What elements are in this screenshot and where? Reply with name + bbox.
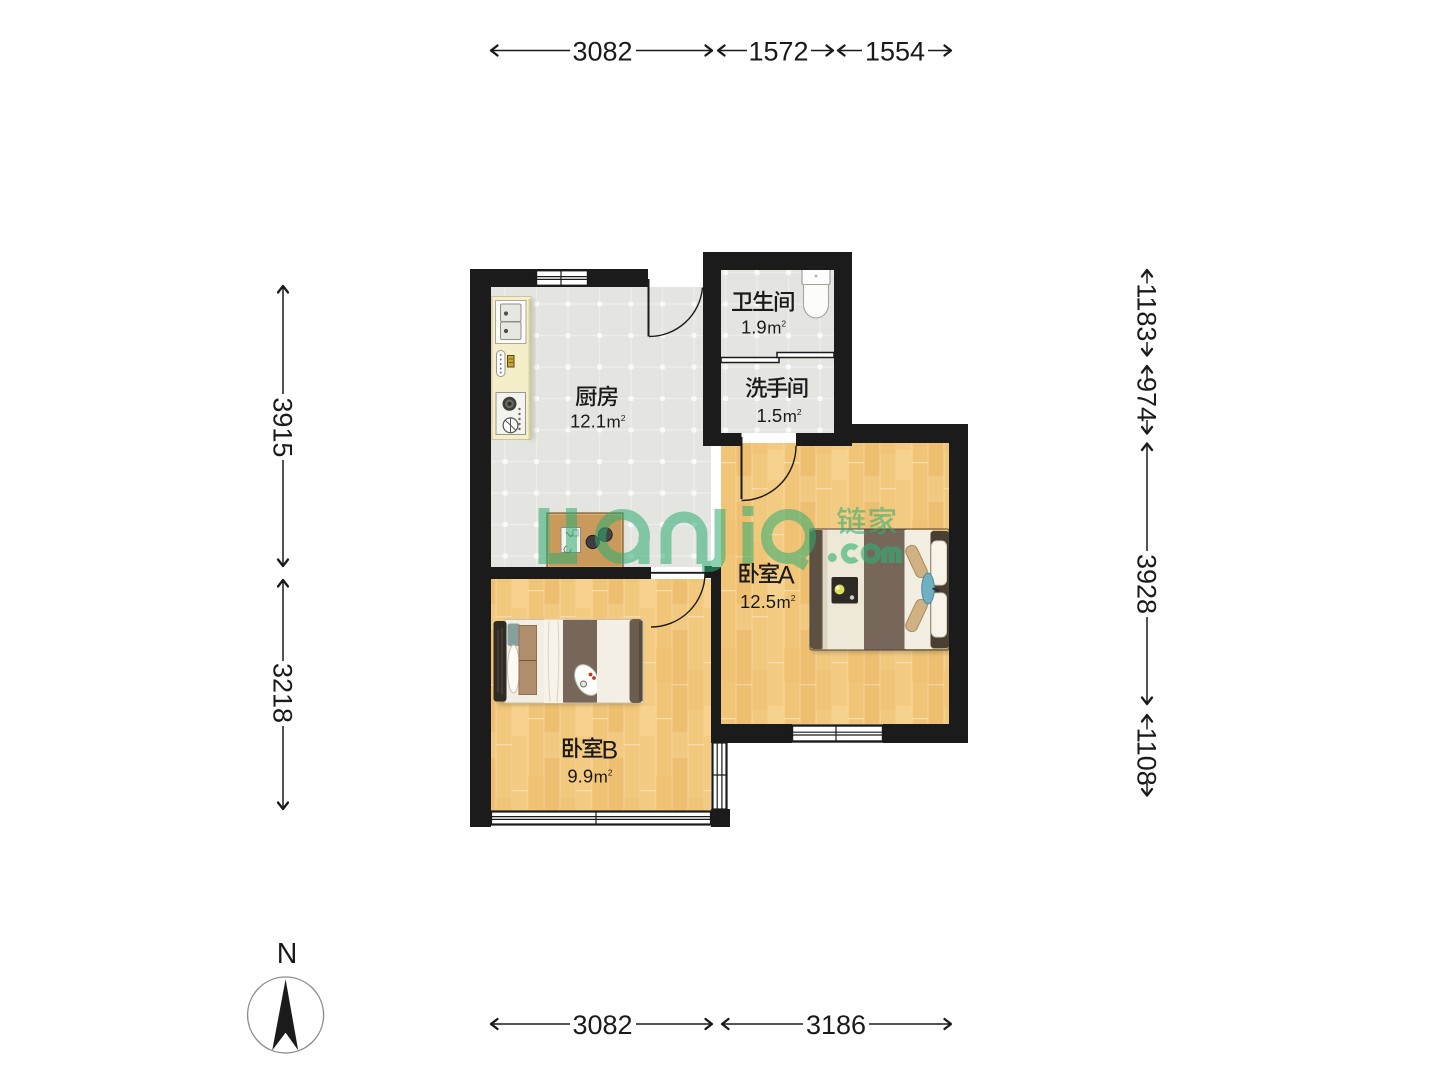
svg-text:1554: 1554 bbox=[865, 36, 925, 66]
svg-text:N: N bbox=[277, 938, 298, 970]
svg-text:1572: 1572 bbox=[748, 36, 808, 66]
svg-text:3928: 3928 bbox=[1132, 554, 1162, 614]
svg-text:12.1m2: 12.1m2 bbox=[570, 411, 626, 432]
svg-text:9.9m2: 9.9m2 bbox=[567, 766, 612, 787]
svg-text:12.5m2: 12.5m2 bbox=[740, 591, 796, 612]
svg-text:A: A bbox=[778, 562, 795, 590]
svg-text:3186: 3186 bbox=[806, 1010, 866, 1040]
svg-text:B: B bbox=[602, 736, 619, 764]
svg-text:974: 974 bbox=[1132, 377, 1162, 422]
svg-text:3082: 3082 bbox=[572, 36, 632, 66]
svg-text:1.5m2: 1.5m2 bbox=[757, 405, 802, 426]
svg-text:1108: 1108 bbox=[1132, 728, 1162, 786]
svg-text:1183: 1183 bbox=[1132, 283, 1162, 341]
svg-text:3915: 3915 bbox=[268, 397, 298, 457]
svg-text:3082: 3082 bbox=[572, 1010, 632, 1040]
svg-text:1.9m2: 1.9m2 bbox=[741, 317, 786, 338]
svg-text:3218: 3218 bbox=[268, 663, 298, 723]
